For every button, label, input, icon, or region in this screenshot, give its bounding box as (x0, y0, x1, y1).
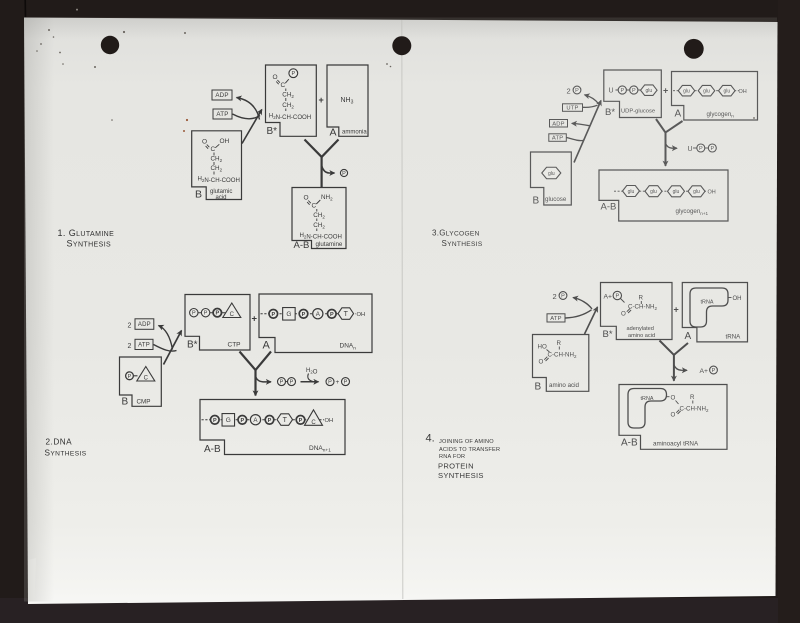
svg-text:A-B: A-B (601, 201, 617, 212)
svg-text:A: A (330, 126, 337, 138)
svg-text:glycogenn: glycogenn (707, 111, 735, 119)
svg-text:P: P (710, 146, 714, 152)
svg-text:O: O (539, 359, 544, 366)
svg-text:P: P (302, 312, 306, 318)
svg-text:SYNTHESIS: SYNTHESIS (442, 239, 483, 248)
svg-text:amino acid: amino acid (549, 382, 579, 389)
svg-text:2: 2 (128, 323, 132, 330)
svg-text:tRNA: tRNA (726, 333, 742, 340)
svg-text:OH: OH (220, 138, 230, 145)
svg-text:adenylated: adenylated (627, 326, 654, 332)
svg-text:glu: glu (703, 89, 710, 95)
svg-text:R: R (639, 295, 644, 302)
svg-text:P: P (561, 293, 565, 299)
svg-text:glu: glu (650, 189, 657, 195)
svg-text:U: U (609, 88, 614, 95)
svg-text:P: P (192, 311, 196, 317)
svg-text:P: P (215, 311, 219, 317)
svg-text:glu: glu (645, 88, 652, 94)
svg-text:C: C (144, 376, 149, 382)
svg-text:B*: B* (267, 126, 278, 137)
svg-text:SYNTHESIS: SYNTHESIS (45, 449, 87, 458)
svg-text:OH: OH (325, 418, 334, 424)
svg-text:JOINING OF AMINO: JOINING OF AMINO (439, 439, 494, 445)
svg-text:C: C (211, 146, 216, 153)
svg-text:B: B (195, 189, 202, 201)
svg-text:P: P (271, 312, 275, 318)
svg-text:P: P (712, 368, 716, 374)
svg-text:glu: glu (693, 189, 700, 195)
svg-text:C: C (311, 420, 316, 426)
svg-text:CTP: CTP (228, 342, 241, 349)
svg-text:P: P (342, 171, 346, 177)
svg-text:H2N-CH-COOH: H2N-CH-COOH (269, 112, 311, 121)
svg-text:2: 2 (553, 292, 557, 301)
svg-text:O: O (304, 195, 309, 202)
svg-text:ACIDS TO TRANSFER: ACIDS TO TRANSFER (439, 447, 500, 453)
svg-text:P: P (330, 312, 334, 318)
svg-text:+: + (336, 379, 340, 386)
svg-text:glu: glu (683, 89, 690, 95)
svg-text:2.DNA: 2.DNA (46, 438, 73, 447)
svg-text:P: P (213, 418, 217, 424)
svg-text:+: + (674, 305, 679, 315)
svg-text:A-B: A-B (204, 444, 221, 455)
svg-text:O: O (621, 311, 626, 318)
svg-text:+: + (252, 314, 258, 325)
svg-text:A+: A+ (604, 294, 613, 301)
svg-text:aminoacyl tRNA: aminoacyl tRNA (653, 440, 699, 447)
svg-text:A: A (675, 108, 682, 119)
svg-text:2: 2 (567, 87, 571, 96)
svg-text:P: P (280, 380, 284, 386)
svg-text:C-CH-NH2: C-CH-NH2 (628, 304, 657, 312)
svg-text:OH: OH (708, 190, 716, 196)
svg-text:P: P (344, 380, 348, 386)
svg-text:P: P (291, 71, 295, 77)
svg-text:P: P (204, 311, 208, 317)
svg-text:PROTEIN: PROTEIN (438, 462, 474, 471)
svg-text:P: P (268, 418, 272, 424)
svg-text:P: P (328, 380, 332, 386)
svg-text:O: O (273, 74, 278, 81)
svg-text:glu: glu (673, 189, 680, 195)
svg-text:ATP: ATP (550, 316, 561, 322)
svg-text:A: A (685, 331, 692, 342)
svg-text:ADP: ADP (138, 322, 151, 328)
svg-text:P: P (632, 88, 636, 94)
svg-text:CMP: CMP (137, 398, 151, 405)
svg-text:UTP: UTP (566, 106, 578, 112)
svg-text:A+: A+ (700, 368, 709, 375)
svg-text:P: P (615, 293, 619, 299)
svg-text:C: C (312, 203, 317, 210)
svg-text:H2N-CH-COOH: H2N-CH-COOH (300, 232, 342, 241)
svg-text:glu: glu (723, 89, 730, 95)
svg-text:C: C (230, 312, 235, 318)
svg-text:T: T (283, 417, 288, 424)
svg-text:RNA FOR: RNA FOR (439, 454, 465, 460)
svg-text:tRNA: tRNA (641, 396, 654, 402)
svg-text:B*: B* (603, 329, 613, 340)
svg-text:OH: OH (357, 312, 366, 318)
svg-text:G: G (226, 417, 231, 424)
svg-text:glutamine: glutamine (316, 241, 343, 248)
svg-text:glucose: glucose (545, 196, 567, 203)
svg-text:A-B: A-B (294, 240, 310, 251)
svg-text:SYNTHESIS: SYNTHESIS (438, 471, 484, 480)
svg-text:UDP-glucose: UDP-glucose (621, 108, 655, 114)
svg-text:C: C (281, 82, 286, 89)
svg-text:OH: OH (739, 89, 747, 95)
svg-text:ADP: ADP (215, 92, 228, 99)
svg-text:B*: B* (605, 107, 615, 118)
svg-text:tRNA: tRNA (701, 299, 714, 305)
svg-text:ADP: ADP (552, 121, 565, 127)
svg-text:G: G (286, 311, 291, 318)
svg-text:B: B (533, 195, 540, 206)
svg-text:P: P (290, 380, 294, 386)
svg-text:ATP: ATP (138, 343, 150, 349)
svg-text:2: 2 (128, 343, 132, 350)
svg-text:ammonia: ammonia (342, 130, 367, 136)
svg-text:U: U (688, 146, 693, 153)
svg-text:O: O (671, 394, 676, 401)
svg-text:A: A (263, 340, 271, 352)
svg-text:+: + (663, 86, 668, 96)
svg-text:B: B (122, 397, 129, 408)
svg-text:ATP: ATP (216, 111, 228, 118)
svg-text:C-CH-NH2: C-CH-NH2 (680, 406, 709, 414)
svg-text:B: B (535, 382, 542, 393)
svg-text:P: P (299, 418, 303, 424)
svg-text:glu: glu (628, 189, 635, 195)
svg-text:ATP: ATP (552, 136, 563, 142)
svg-text:A-B: A-B (621, 437, 638, 448)
svg-text:4.: 4. (426, 433, 435, 445)
svg-text:B*: B* (187, 340, 198, 351)
svg-text:P: P (575, 88, 579, 94)
svg-text:OH: OH (733, 296, 742, 302)
svg-text:H2N-CH-COOH: H2N-CH-COOH (198, 175, 240, 184)
svg-text:P: P (128, 374, 132, 380)
svg-text:P: P (620, 88, 624, 94)
svg-text:acid: acid (216, 195, 227, 201)
svg-text:amino acid: amino acid (628, 333, 655, 339)
svg-text:O: O (202, 139, 207, 146)
svg-text:+: + (319, 95, 324, 105)
svg-text:3.GLYCOGEN: 3.GLYCOGEN (432, 229, 480, 238)
svg-text:P: P (699, 146, 703, 152)
svg-text:C-CH-NH2: C-CH-NH2 (548, 352, 577, 360)
svg-text:T: T (344, 311, 349, 318)
svg-text:R: R (557, 340, 562, 347)
svg-text:glu: glu (548, 171, 555, 177)
svg-text:P: P (240, 418, 244, 424)
svg-text:O: O (671, 412, 676, 419)
svg-text:R: R (690, 394, 695, 401)
svg-text:HO: HO (538, 344, 547, 351)
